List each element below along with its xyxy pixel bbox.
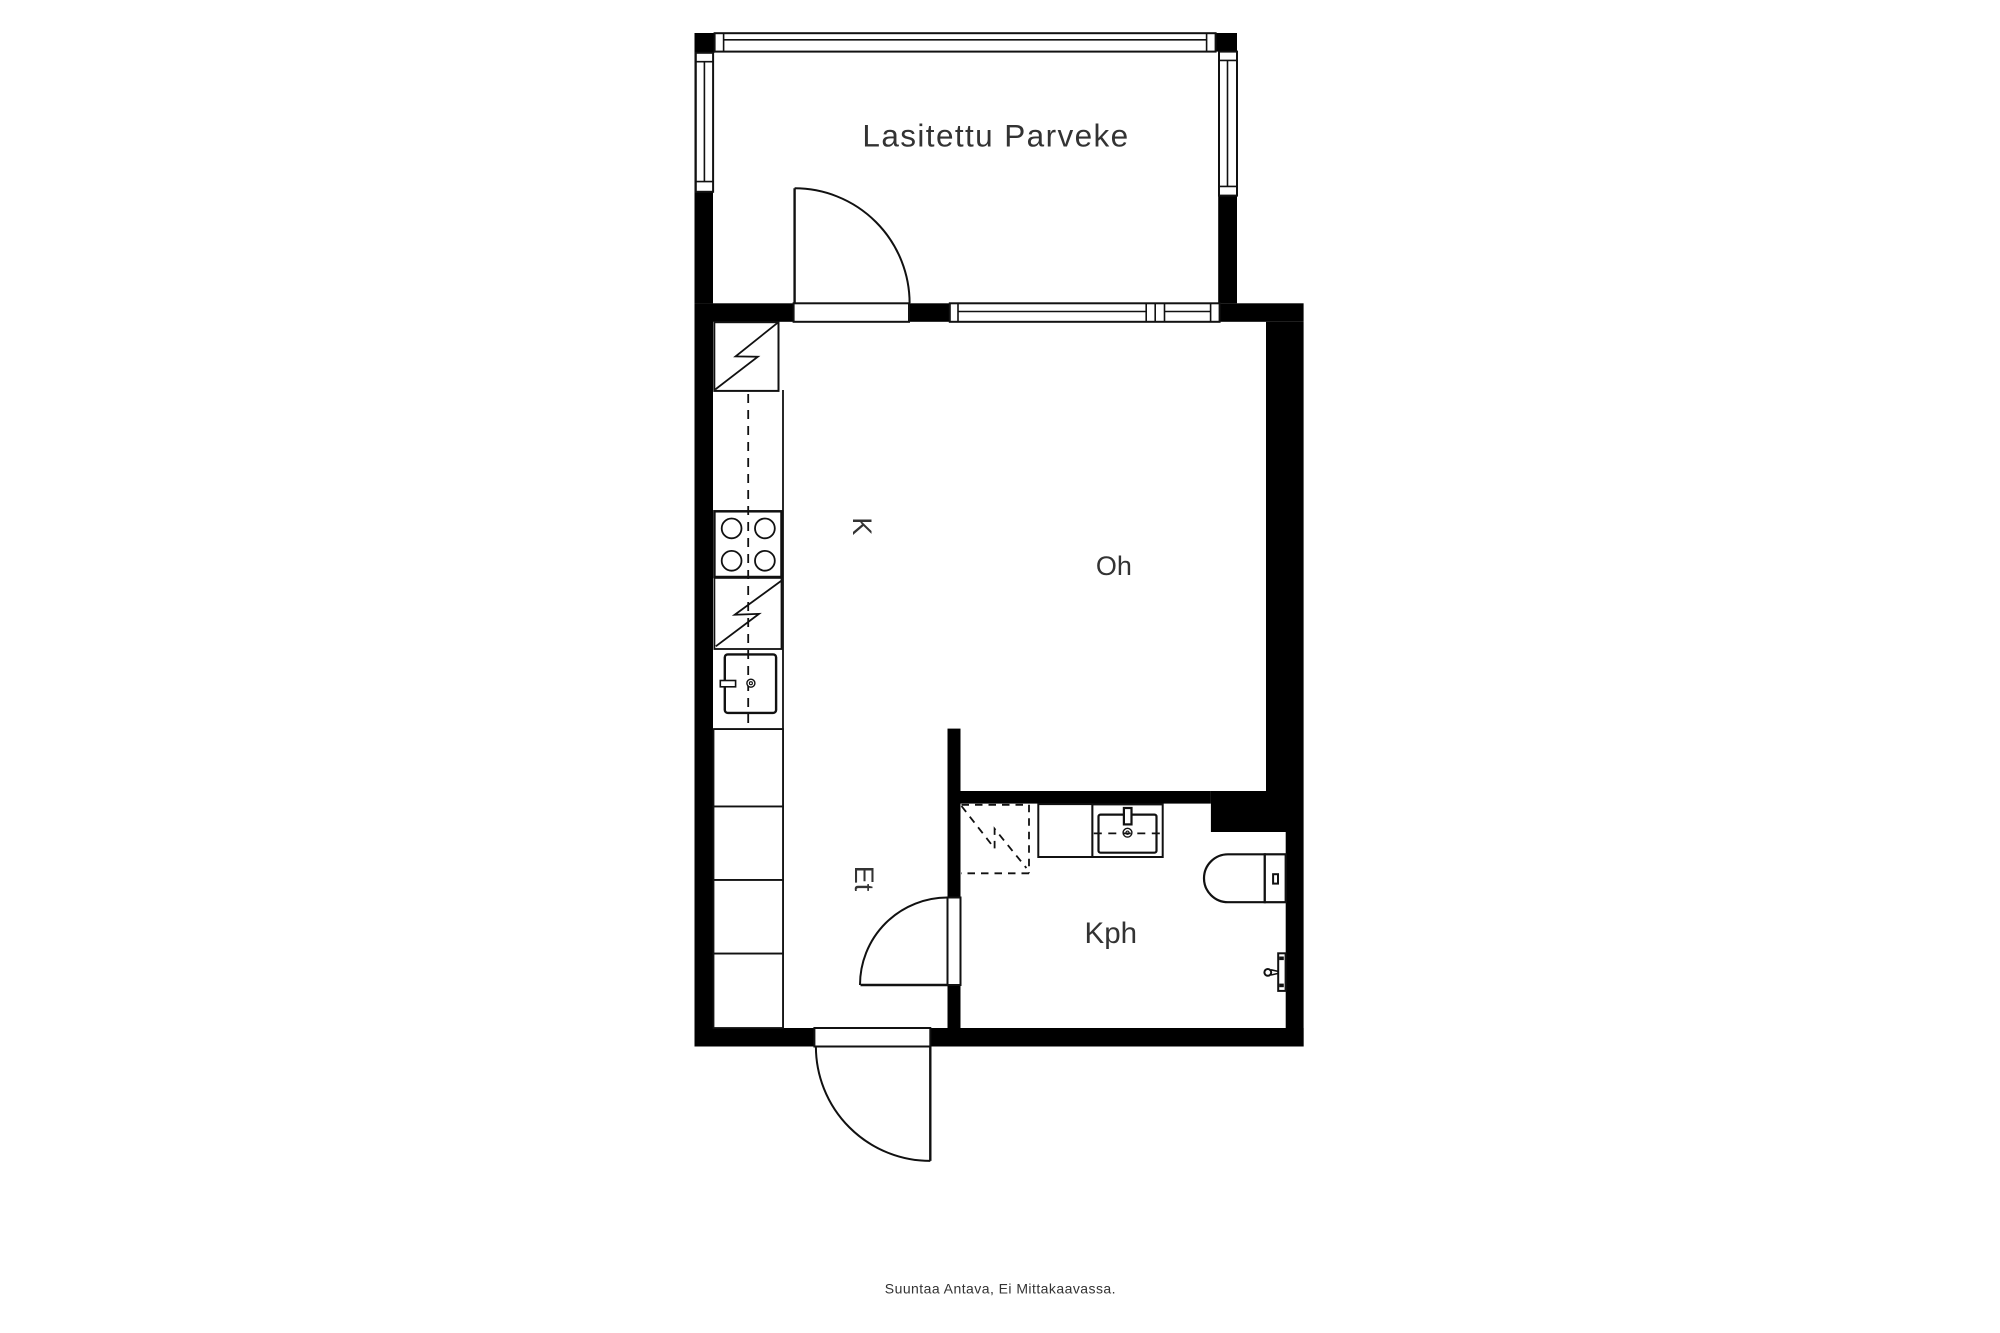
svg-text:Suuntaa Antava, Ei Mittakaavas: Suuntaa Antava, Ei Mittakaavassa. bbox=[885, 1280, 1116, 1296]
svg-text:Lasitettu Parveke: Lasitettu Parveke bbox=[862, 117, 1129, 153]
svg-text:Et: Et bbox=[849, 866, 879, 892]
svg-text:Oh: Oh bbox=[1096, 551, 1132, 581]
svg-text:Kph: Kph bbox=[1085, 917, 1138, 950]
svg-text:K: K bbox=[847, 517, 877, 535]
